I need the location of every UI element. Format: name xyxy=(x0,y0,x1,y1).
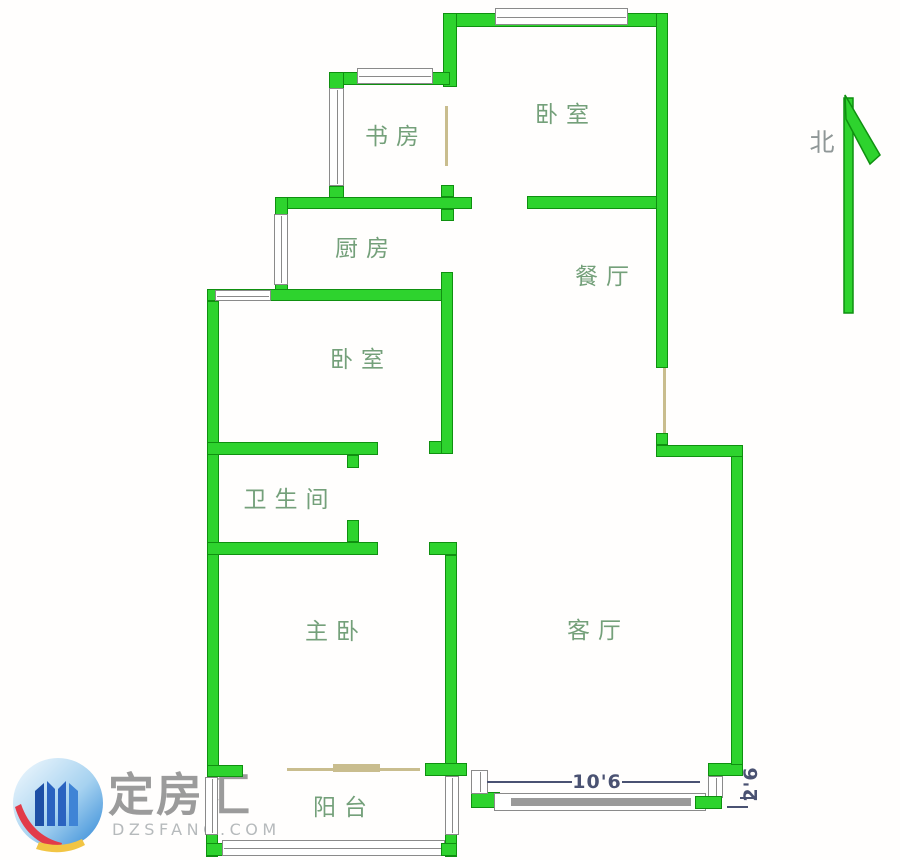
wall-segment xyxy=(429,441,442,454)
slider-door-leaf xyxy=(333,764,380,772)
window xyxy=(205,777,218,835)
wall-segment xyxy=(695,796,722,809)
wall-segment xyxy=(347,520,359,542)
opening-line xyxy=(663,368,666,434)
dimension-line xyxy=(727,806,748,808)
wall-segment xyxy=(347,455,359,468)
dimension-label-width: 10'6 xyxy=(572,771,621,793)
window xyxy=(357,68,433,84)
wall-segment xyxy=(441,209,454,221)
dimension-label-side: 2'6 xyxy=(740,766,762,801)
wall-segment xyxy=(429,542,457,555)
wall-segment xyxy=(731,445,743,765)
room-label-dining: 餐厅 xyxy=(575,257,637,291)
wall-segment xyxy=(441,843,457,856)
wall-segment xyxy=(207,542,378,555)
wall-segment xyxy=(207,765,243,777)
room-label-balcony: 阳台 xyxy=(313,788,375,822)
wall-segment xyxy=(207,301,219,767)
room-label-bedroom-mid: 卧室 xyxy=(330,340,392,374)
wall-segment xyxy=(425,763,467,776)
watermark-domain: DZSFANG.COM xyxy=(112,820,281,839)
watermark-logo xyxy=(8,755,108,857)
window xyxy=(708,776,723,798)
room-label-living: 客厅 xyxy=(567,611,629,645)
wall-segment xyxy=(207,442,378,455)
wall-segment xyxy=(656,445,743,457)
door-leaf xyxy=(445,106,448,166)
wall-segment xyxy=(441,185,454,197)
room-label-kitchen: 厨房 xyxy=(335,229,397,263)
room-label-bathroom: 卫生间 xyxy=(244,480,337,514)
wall-segment xyxy=(329,72,344,89)
wall-segment xyxy=(276,197,472,209)
room-label-master: 主卧 xyxy=(305,612,367,646)
wall-segment xyxy=(527,196,668,209)
wall-segment xyxy=(656,433,668,445)
window-glass xyxy=(511,798,691,806)
wall-segment xyxy=(656,13,668,368)
north-arrow-icon xyxy=(800,85,900,325)
window xyxy=(222,840,445,856)
entry-door xyxy=(471,770,488,794)
window xyxy=(494,793,706,811)
wall-segment xyxy=(275,197,288,215)
wall-segment xyxy=(445,555,457,765)
room-label-study: 书房 xyxy=(365,117,427,151)
window xyxy=(274,214,288,285)
window xyxy=(495,8,628,25)
wall-segment xyxy=(441,272,453,454)
north-label: 北 xyxy=(809,123,834,159)
window xyxy=(215,290,271,301)
dimension-line xyxy=(622,781,700,783)
room-label-bedroom-top: 卧室 xyxy=(535,95,597,129)
window xyxy=(329,88,344,186)
dimension-line xyxy=(487,781,572,783)
window xyxy=(445,776,459,835)
floor-plan: 定房汇 DZSFANG.COM xyxy=(0,0,900,860)
